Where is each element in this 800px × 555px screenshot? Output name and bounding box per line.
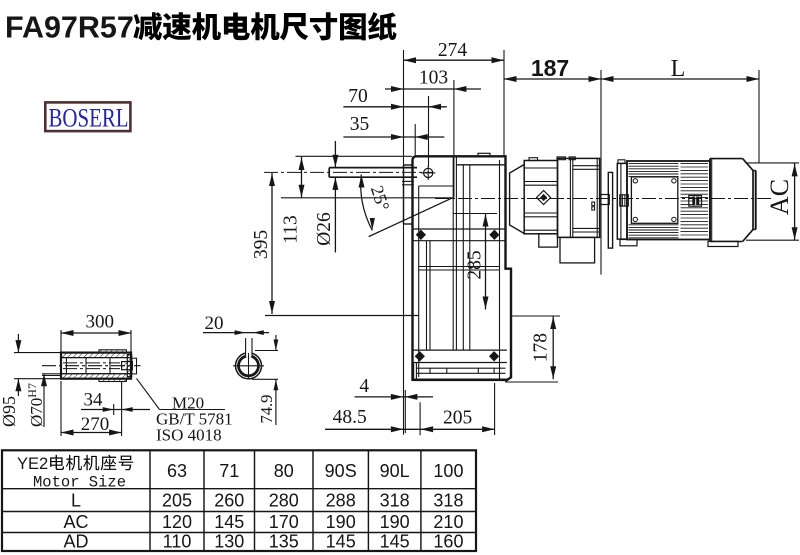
svg-text:160: 160 [433,532,463,552]
svg-text:Ø26: Ø26 [314,212,335,246]
svg-text:187: 187 [531,55,569,81]
svg-text:Motor Size: Motor Size [33,474,126,492]
svg-text:280: 280 [269,491,299,511]
svg-text:AC: AC [63,512,88,532]
svg-text:48.5: 48.5 [333,407,367,428]
svg-text:135: 135 [269,532,299,552]
svg-text:170: 170 [269,512,299,532]
svg-text:210: 210 [433,512,463,532]
svg-text:BOSERL: BOSERL [49,104,129,133]
svg-text:120: 120 [162,512,192,532]
svg-text:L: L [71,491,81,511]
svg-text:205: 205 [162,491,192,511]
svg-text:FA97R57: FA97R57 [5,11,134,45]
svg-text:103: 103 [419,68,448,89]
svg-text:205: 205 [443,408,472,429]
svg-text:ISO 4018: ISO 4018 [156,426,222,445]
svg-text:71: 71 [219,461,239,481]
svg-text:274: 274 [438,40,468,61]
svg-text:L: L [671,56,686,82]
svg-text:270: 270 [81,414,110,435]
svg-text:34: 34 [84,390,104,411]
svg-text:Ø95: Ø95 [0,396,19,427]
svg-text:110: 110 [163,532,192,552]
svg-text:190: 190 [380,512,410,532]
svg-text:100: 100 [433,461,463,481]
svg-text:145: 145 [214,512,244,532]
svg-text:35: 35 [350,114,370,135]
svg-text:74.9: 74.9 [257,395,276,424]
svg-text:145: 145 [326,532,356,552]
svg-text:AD: AD [63,532,88,552]
svg-text:145: 145 [380,532,410,552]
svg-text:260: 260 [214,491,244,511]
svg-text:190: 190 [326,512,356,532]
svg-text:300: 300 [86,312,115,333]
svg-text:63: 63 [167,461,187,481]
svg-text:AC: AC [765,179,794,215]
svg-text:318: 318 [433,491,463,511]
svg-text:318: 318 [380,491,410,511]
svg-text:113: 113 [281,215,302,244]
svg-text:70: 70 [348,86,368,107]
svg-text:YE2: YE2 [17,455,48,473]
svg-text:4: 4 [359,376,369,397]
svg-text:80: 80 [274,461,294,481]
svg-text:20: 20 [205,313,224,334]
svg-text:90S: 90S [325,461,357,481]
svg-text:178: 178 [531,333,552,362]
svg-text:90L: 90L [380,461,410,481]
svg-text:395: 395 [251,230,272,259]
svg-text:130: 130 [214,532,244,552]
svg-text:285: 285 [465,250,486,279]
svg-text:288: 288 [326,491,356,511]
